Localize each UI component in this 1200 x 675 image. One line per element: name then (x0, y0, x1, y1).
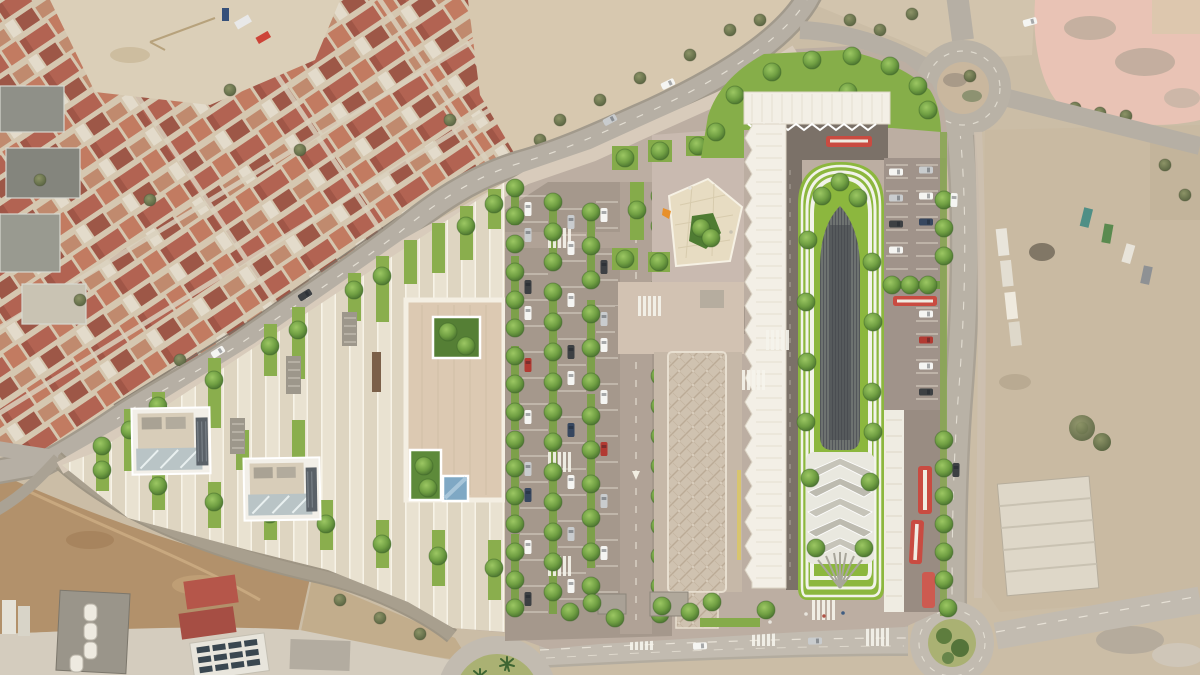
bus-north (826, 136, 872, 147)
east-road (952, 112, 965, 628)
derelict-yard (978, 125, 1200, 667)
north-stub-road (957, 0, 963, 40)
office-building-2 (243, 457, 320, 520)
tactile-strip (737, 470, 741, 560)
green-roof-station (797, 162, 884, 600)
aerial-screenshot (0, 0, 1200, 675)
bus-east-horizontal (893, 296, 937, 306)
aerial-scene (0, 0, 1200, 675)
courtyard-building (406, 300, 504, 501)
quilted-canopy-roof (668, 352, 726, 592)
east-sidewalk (978, 132, 982, 598)
bench (372, 352, 381, 392)
warehouse-east (997, 476, 1098, 596)
tree-parking-west (505, 179, 672, 641)
office-building-1 (131, 407, 210, 474)
